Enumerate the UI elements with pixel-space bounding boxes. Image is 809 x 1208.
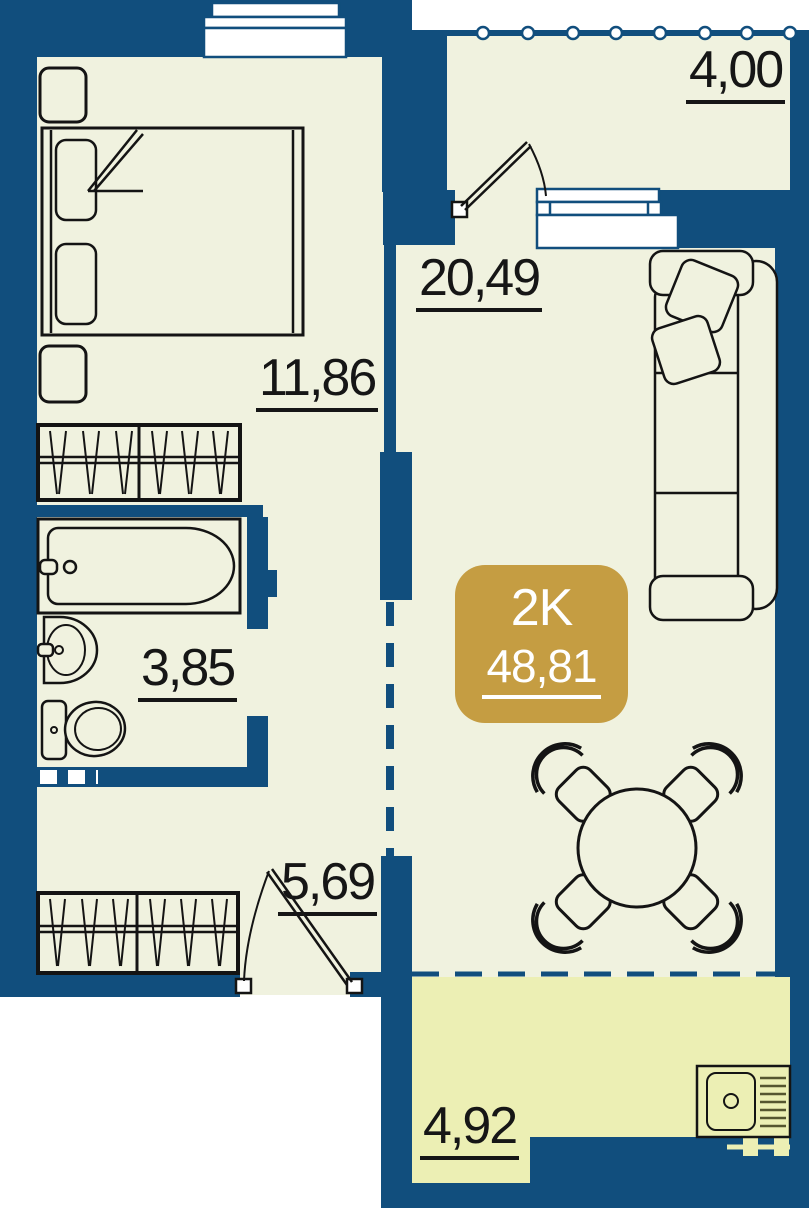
unit-type: 2K: [455, 581, 628, 636]
room-label-bedroom: 11,86: [256, 352, 378, 412]
bed: [42, 128, 303, 335]
kitchen-sink-bowl: [707, 1073, 755, 1130]
room-label-kitchen: 4,92: [420, 1100, 519, 1160]
bedroom-window: [204, 3, 346, 57]
unit-badge: 2K 48,81: [455, 565, 628, 723]
nightstand-top: [40, 68, 86, 122]
kitchen-sink-unit: [697, 1066, 790, 1137]
wardrobe-hallway: [38, 893, 238, 973]
room-label-living: 20,49: [416, 252, 542, 312]
unit-total-area: 48,81: [482, 642, 600, 699]
washbasin-faucet: [38, 644, 53, 656]
sofa: [649, 251, 777, 620]
floor-plan: 4,00 20,49 11,86 3,85 5,69 4,92 2K 48,81: [0, 0, 809, 1208]
room-label-hallway: 5,69: [278, 856, 377, 916]
living-window: [537, 189, 678, 248]
kitchen-drainer: [760, 1078, 786, 1126]
nightstand-bottom: [40, 346, 86, 402]
bathtub-faucet: [40, 560, 57, 574]
sofa-backrest: [735, 261, 777, 609]
sofa-armrest-bottom: [650, 576, 753, 620]
dining-table: [578, 789, 696, 907]
wardrobe-bedroom: [38, 425, 240, 500]
pillow-2: [56, 244, 96, 324]
room-label-balcony: 4,00: [686, 44, 785, 104]
pillow-1: [56, 140, 96, 220]
floor-plan-drawing: [0, 0, 809, 1208]
room-label-bathroom: 3,85: [138, 642, 237, 702]
washbasin: [38, 617, 97, 683]
bathtub: [38, 519, 240, 613]
